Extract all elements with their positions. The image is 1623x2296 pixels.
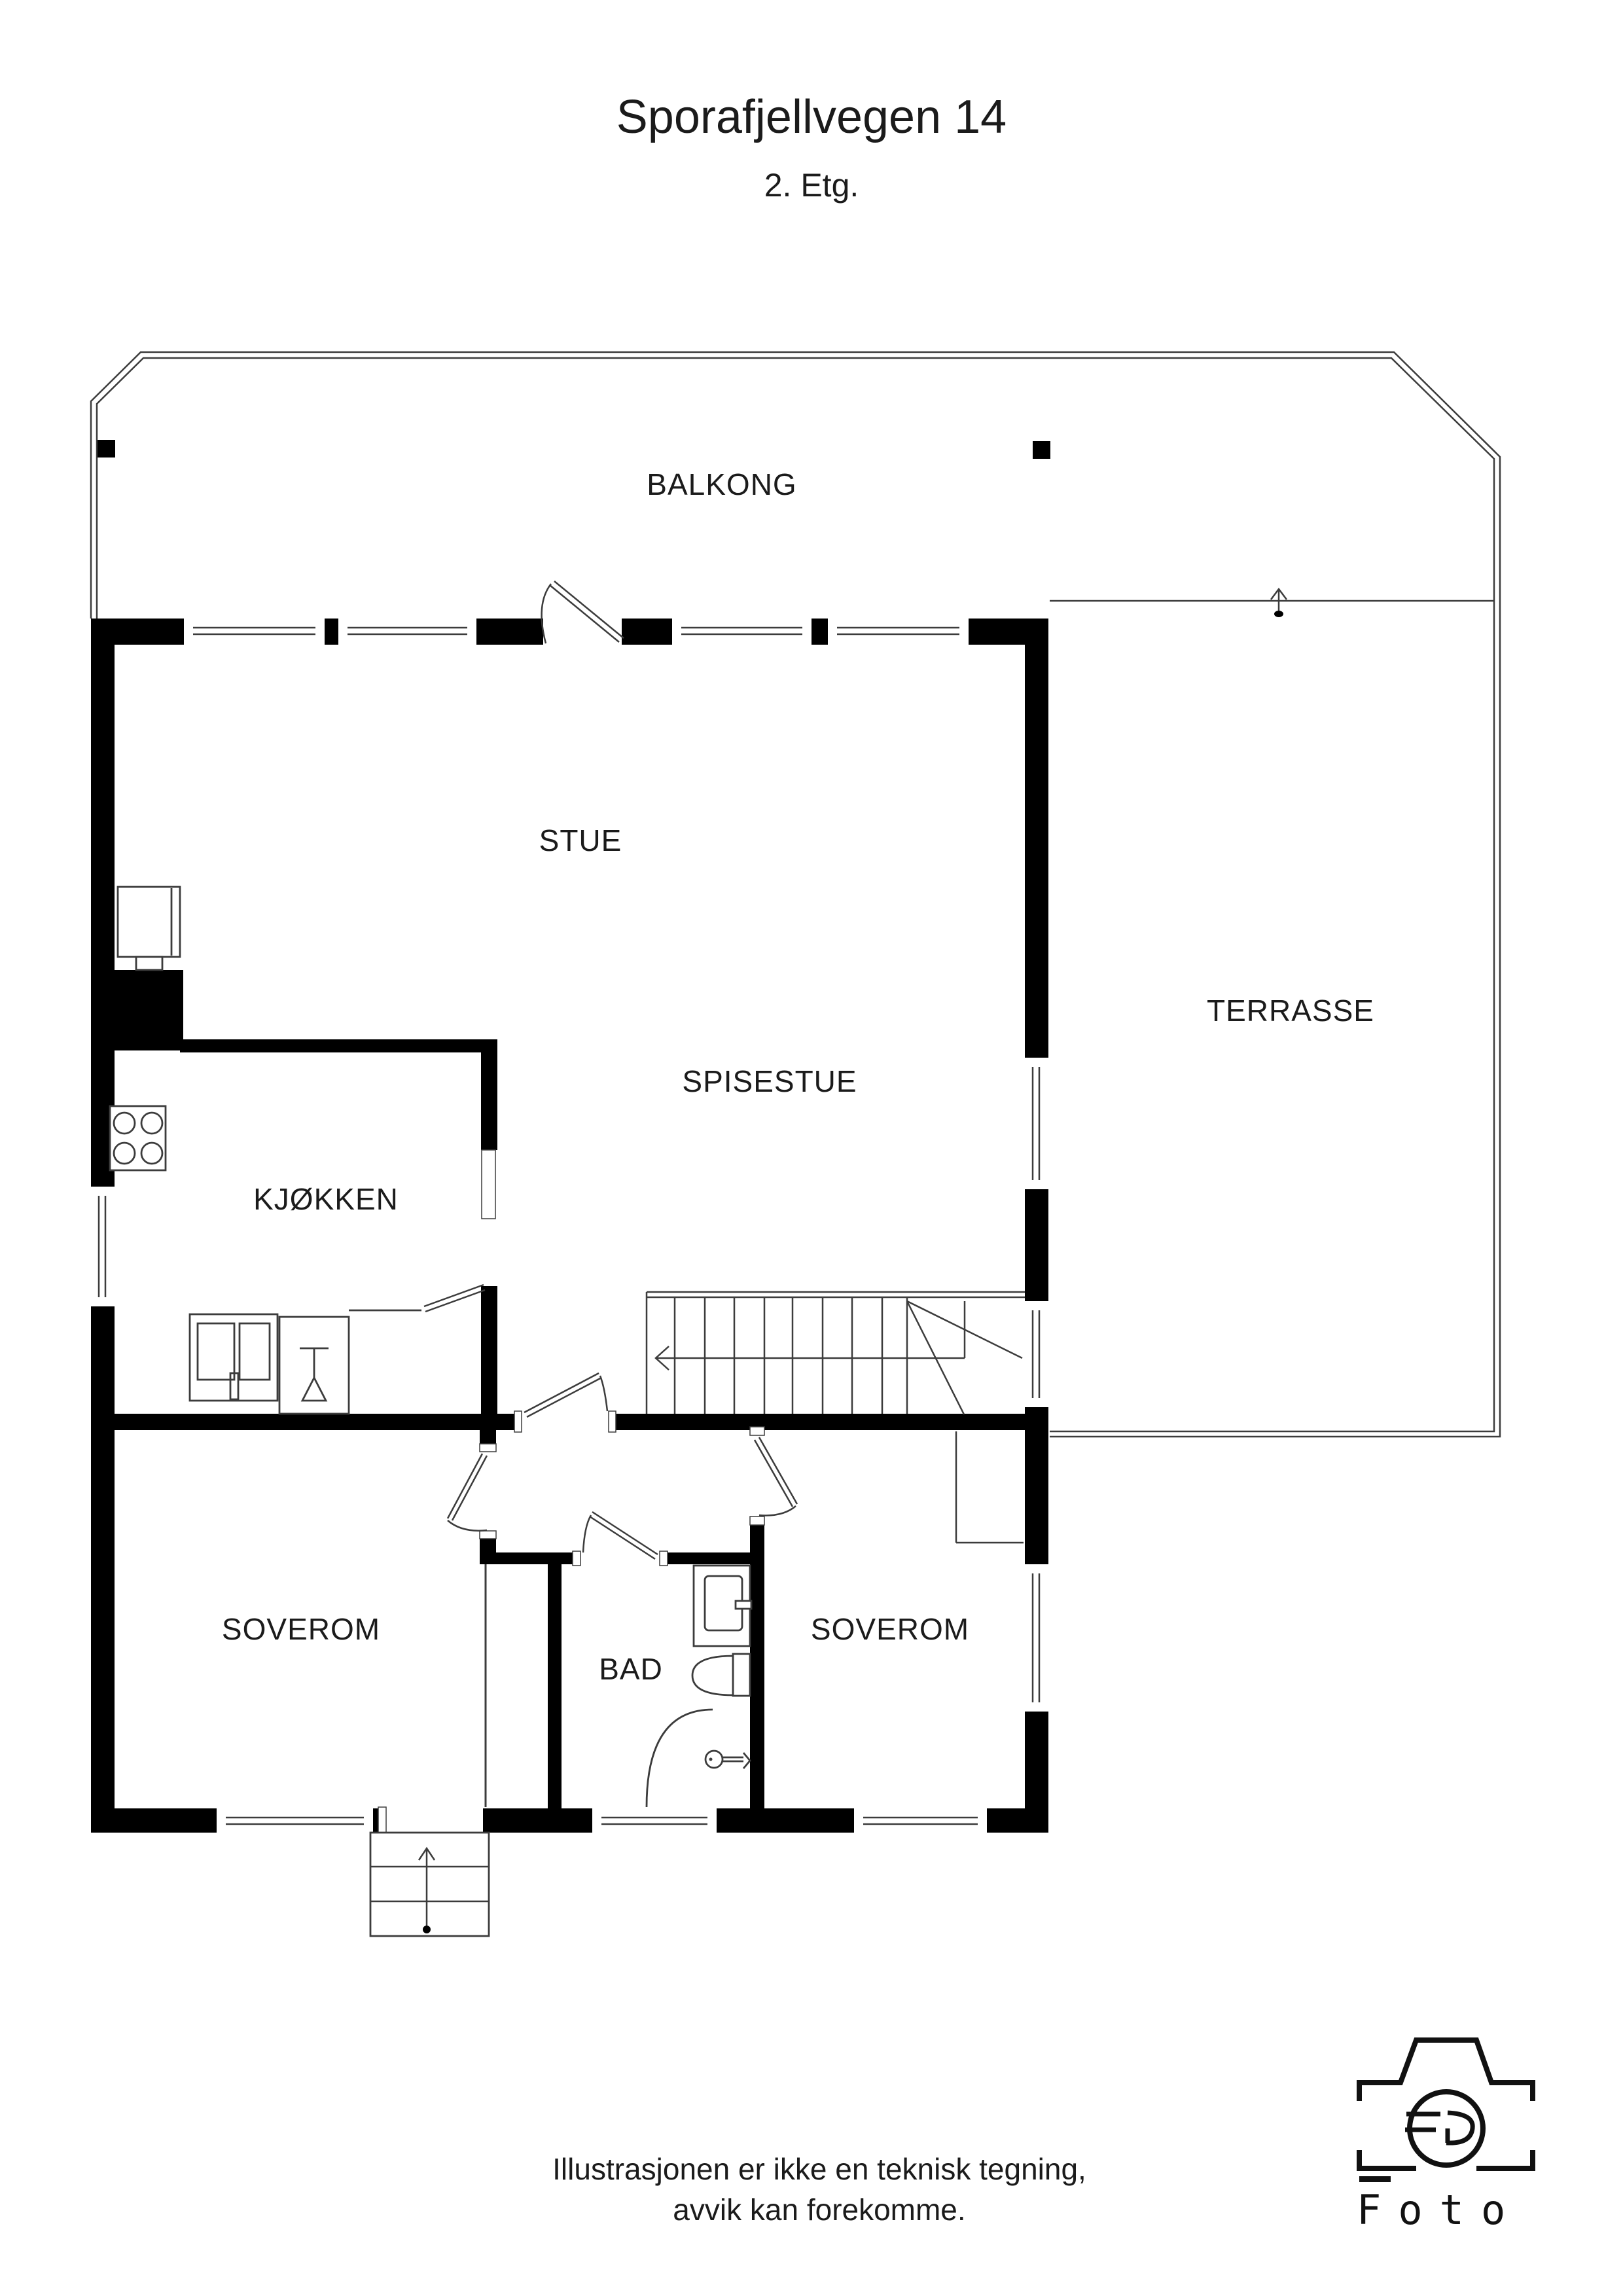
railing-post-middle: [1033, 441, 1050, 459]
faucet-icon: [743, 1753, 750, 1768]
room-label-kjokken: KJØKKEN: [253, 1182, 399, 1216]
logo-wordmark: Foto: [1357, 2186, 1522, 2234]
room-label-soverom-left: SOVEROM: [222, 1612, 380, 1646]
room-label-terrasse: TERRASSE: [1207, 994, 1374, 1028]
shower-area-arc: [647, 1710, 713, 1807]
kitchen-door-leaf: [482, 1150, 495, 1219]
room-label-bad: BAD: [599, 1652, 663, 1686]
entry-door-opening: [386, 1807, 483, 1834]
room-label-stue: STUE: [539, 823, 622, 857]
camera-logo-icon: [1359, 2040, 1533, 2168]
room-label-soverom-right: SOVEROM: [811, 1612, 969, 1646]
balcony-door-opening: [543, 617, 622, 646]
floor-plan-drawing: Sporafjellvegen 14 2. Etg.: [0, 0, 1623, 2296]
page-subtitle: 2. Etg.: [764, 167, 859, 204]
disclaimer-line-1: Illustrasjonen er ikke en teknisk tegnin…: [552, 2152, 1086, 2186]
kitchen-fixtures: [110, 1106, 421, 1414]
disclaimer-line-2: avvik kan forekomme.: [673, 2193, 965, 2227]
basin: [705, 1751, 722, 1768]
page-title: Sporafjellvegen 14: [616, 91, 1007, 143]
hall-door-opening: [522, 1412, 609, 1431]
room-label-spisestue: SPISESTUE: [682, 1064, 857, 1098]
windows: [90, 617, 1050, 1834]
entry-stair: [370, 1833, 489, 1936]
terrace-arrow-icon: [1271, 589, 1287, 617]
fireplace: [118, 887, 180, 970]
chimney-block: [91, 970, 183, 1050]
room-label-balkong: BALKONG: [647, 467, 796, 501]
exterior-walls: [91, 619, 1048, 1833]
bathroom-fixtures: [647, 1566, 751, 1807]
balcony-railing: [91, 352, 1500, 1437]
toilet-tank: [733, 1654, 750, 1696]
staircase: [647, 1292, 1025, 1414]
toilet-bowl: [692, 1656, 733, 1695]
floorplan-page: Sporafjellvegen 14 2. Etg.: [0, 0, 1623, 2296]
logo-overbar: [1359, 2176, 1391, 2182]
railing-post-left: [98, 440, 115, 457]
closet-outline: [956, 1431, 1024, 1543]
